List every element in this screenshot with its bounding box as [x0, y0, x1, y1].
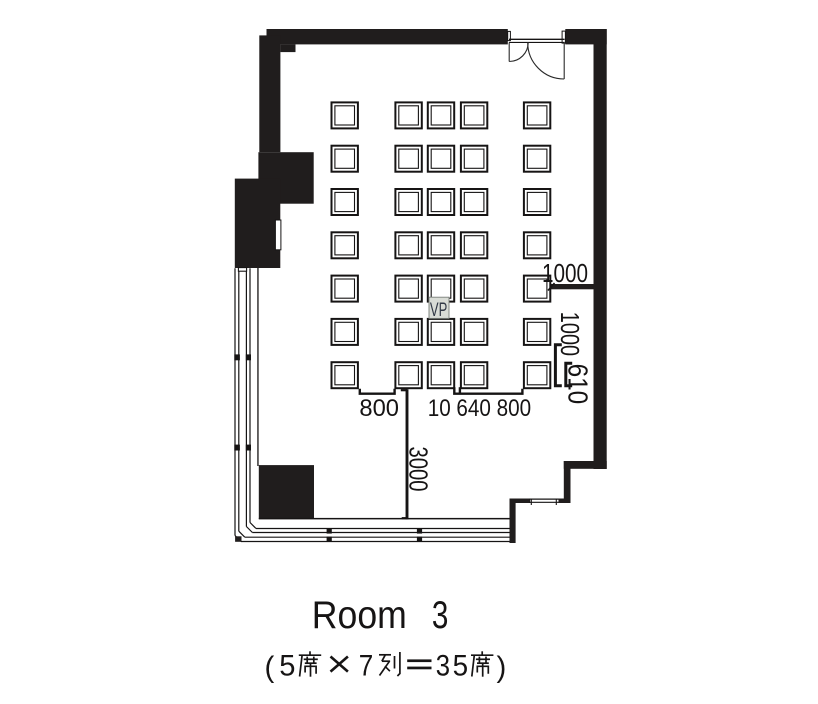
svg-text:3: 3: [436, 650, 450, 683]
svg-text:VP: VP: [430, 300, 447, 321]
svg-text:5: 5: [279, 650, 295, 683]
svg-text:(: (: [265, 651, 275, 684]
svg-text:1000: 1000: [542, 260, 588, 288]
svg-text:1000: 1000: [555, 312, 583, 356]
svg-text:10 640 800: 10 640 800: [428, 395, 532, 422]
svg-text:3: 3: [432, 594, 449, 637]
svg-text:800: 800: [359, 395, 399, 422]
svg-text:Room: Room: [312, 594, 407, 637]
svg-text:): ): [497, 651, 507, 684]
svg-text:3000: 3000: [403, 447, 433, 492]
svg-text:5: 5: [453, 650, 469, 683]
svg-text:7: 7: [359, 650, 374, 683]
